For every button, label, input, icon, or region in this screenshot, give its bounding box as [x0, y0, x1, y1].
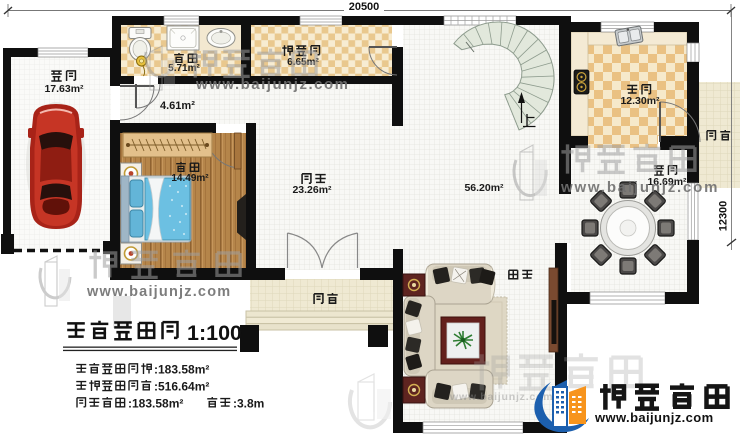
svg-text:www.baijunjz.com: www.baijunjz.com — [594, 410, 714, 425]
svg-text:www.baijunjz.com: www.baijunjz.com — [560, 179, 719, 196]
svg-text::516.64m²: :516.64m² — [154, 380, 209, 394]
svg-text::3.8m: :3.8m — [233, 397, 264, 411]
svg-text:www.baijunjz.com: www.baijunjz.com — [195, 76, 349, 93]
svg-text:www.baijunjz.com: www.baijunjz.com — [86, 284, 231, 300]
svg-text:56.20m²: 56.20m² — [464, 182, 504, 194]
svg-text:12300: 12300 — [718, 201, 730, 232]
svg-text::183.58m²: :183.58m² — [154, 363, 209, 377]
svg-text:1:100: 1:100 — [187, 321, 242, 345]
svg-text:4.61m²: 4.61m² — [160, 100, 195, 112]
svg-text:14.49m²: 14.49m² — [171, 173, 209, 184]
svg-text:23.26m²: 23.26m² — [292, 184, 332, 196]
svg-text:20500: 20500 — [349, 1, 380, 13]
svg-text::183.58m²: :183.58m² — [128, 397, 183, 411]
svg-text:12.30m²: 12.30m² — [620, 95, 660, 107]
svg-text:17.63m²: 17.63m² — [44, 83, 84, 95]
